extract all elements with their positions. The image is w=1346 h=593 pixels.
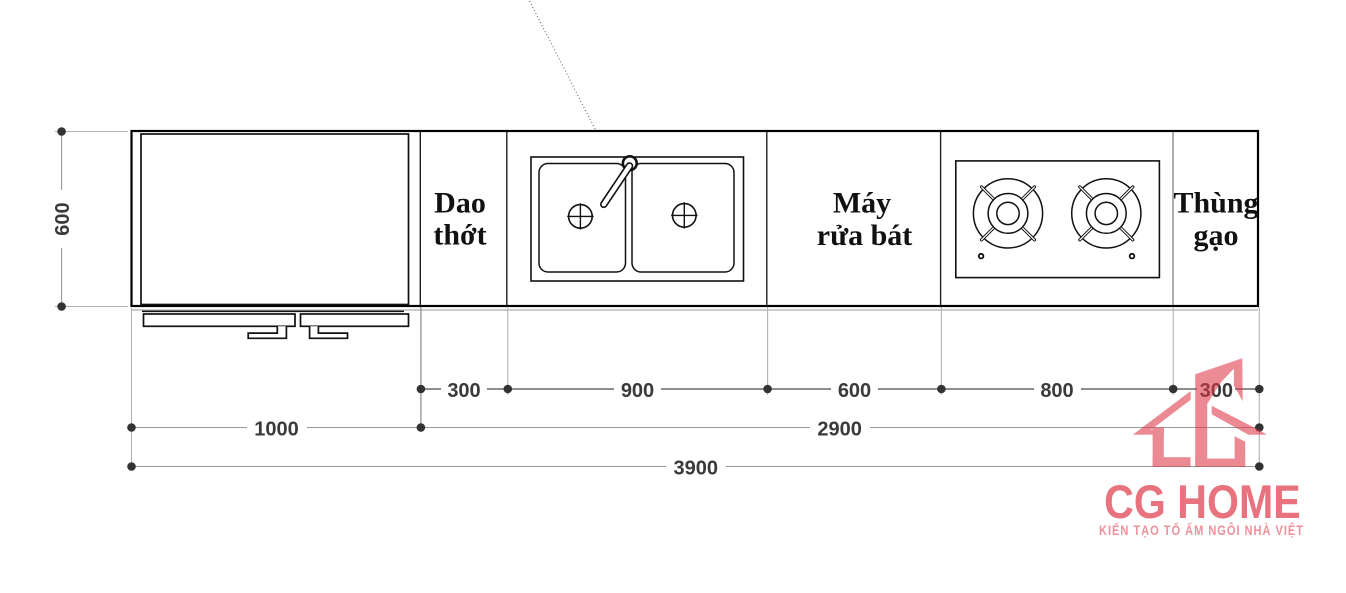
svg-text:thớt: thớt <box>433 219 486 252</box>
svg-text:300: 300 <box>447 380 480 402</box>
svg-text:Máy: Máy <box>833 187 891 220</box>
svg-text:1000: 1000 <box>254 419 299 441</box>
svg-text:800: 800 <box>1040 380 1073 402</box>
svg-text:gạo: gạo <box>1194 219 1239 252</box>
svg-text:3900: 3900 <box>674 458 719 480</box>
svg-text:600: 600 <box>838 380 871 402</box>
svg-text:Thùng: Thùng <box>1173 187 1258 220</box>
svg-text:Dao: Dao <box>434 187 486 220</box>
svg-text:900: 900 <box>621 380 654 402</box>
svg-text:rửa bát: rửa bát <box>817 219 913 252</box>
svg-text:2900: 2900 <box>817 419 862 441</box>
svg-text:KIẾN TẠO TỔ ẤM NGÔI NHÀ VIỆT: KIẾN TẠO TỔ ẤM NGÔI NHÀ VIỆT <box>1099 522 1304 538</box>
svg-text:600: 600 <box>52 202 74 235</box>
svg-text:CG HOME: CG HOME <box>1104 476 1300 528</box>
